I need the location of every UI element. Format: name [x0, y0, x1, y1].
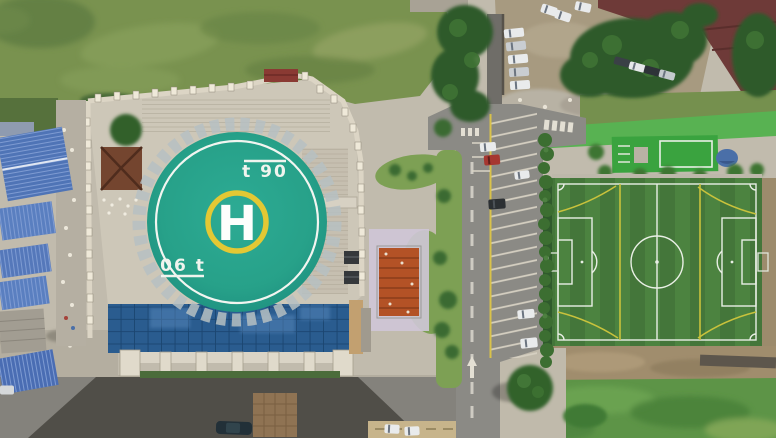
- planter-hedge: [140, 371, 340, 378]
- soccer-field: [543, 174, 776, 346]
- pavilion-roof: [101, 147, 142, 190]
- weight-marking-top-text: t 90: [242, 162, 288, 182]
- weight-marking-bottom-text: 06 t: [160, 256, 206, 276]
- helipad-h-letter: H: [217, 196, 257, 252]
- car-on-road: [216, 421, 252, 435]
- orange-shrine-roof: [377, 246, 421, 318]
- aerial-photo-canvas: t 90 06 t H: [0, 0, 776, 438]
- red-car: [484, 154, 501, 165]
- courtyard-tree: [110, 114, 142, 146]
- weight-marking-top: t 90: [242, 161, 288, 182]
- weight-marking-bottom: 06 t: [160, 256, 206, 276]
- angled-parking-bays[interactable]: [491, 112, 537, 358]
- north-steps: [142, 98, 330, 134]
- bush: [563, 404, 607, 428]
- aerial-photo: t 90 06 t H: [0, 0, 776, 438]
- crosswalk-small: [461, 128, 479, 136]
